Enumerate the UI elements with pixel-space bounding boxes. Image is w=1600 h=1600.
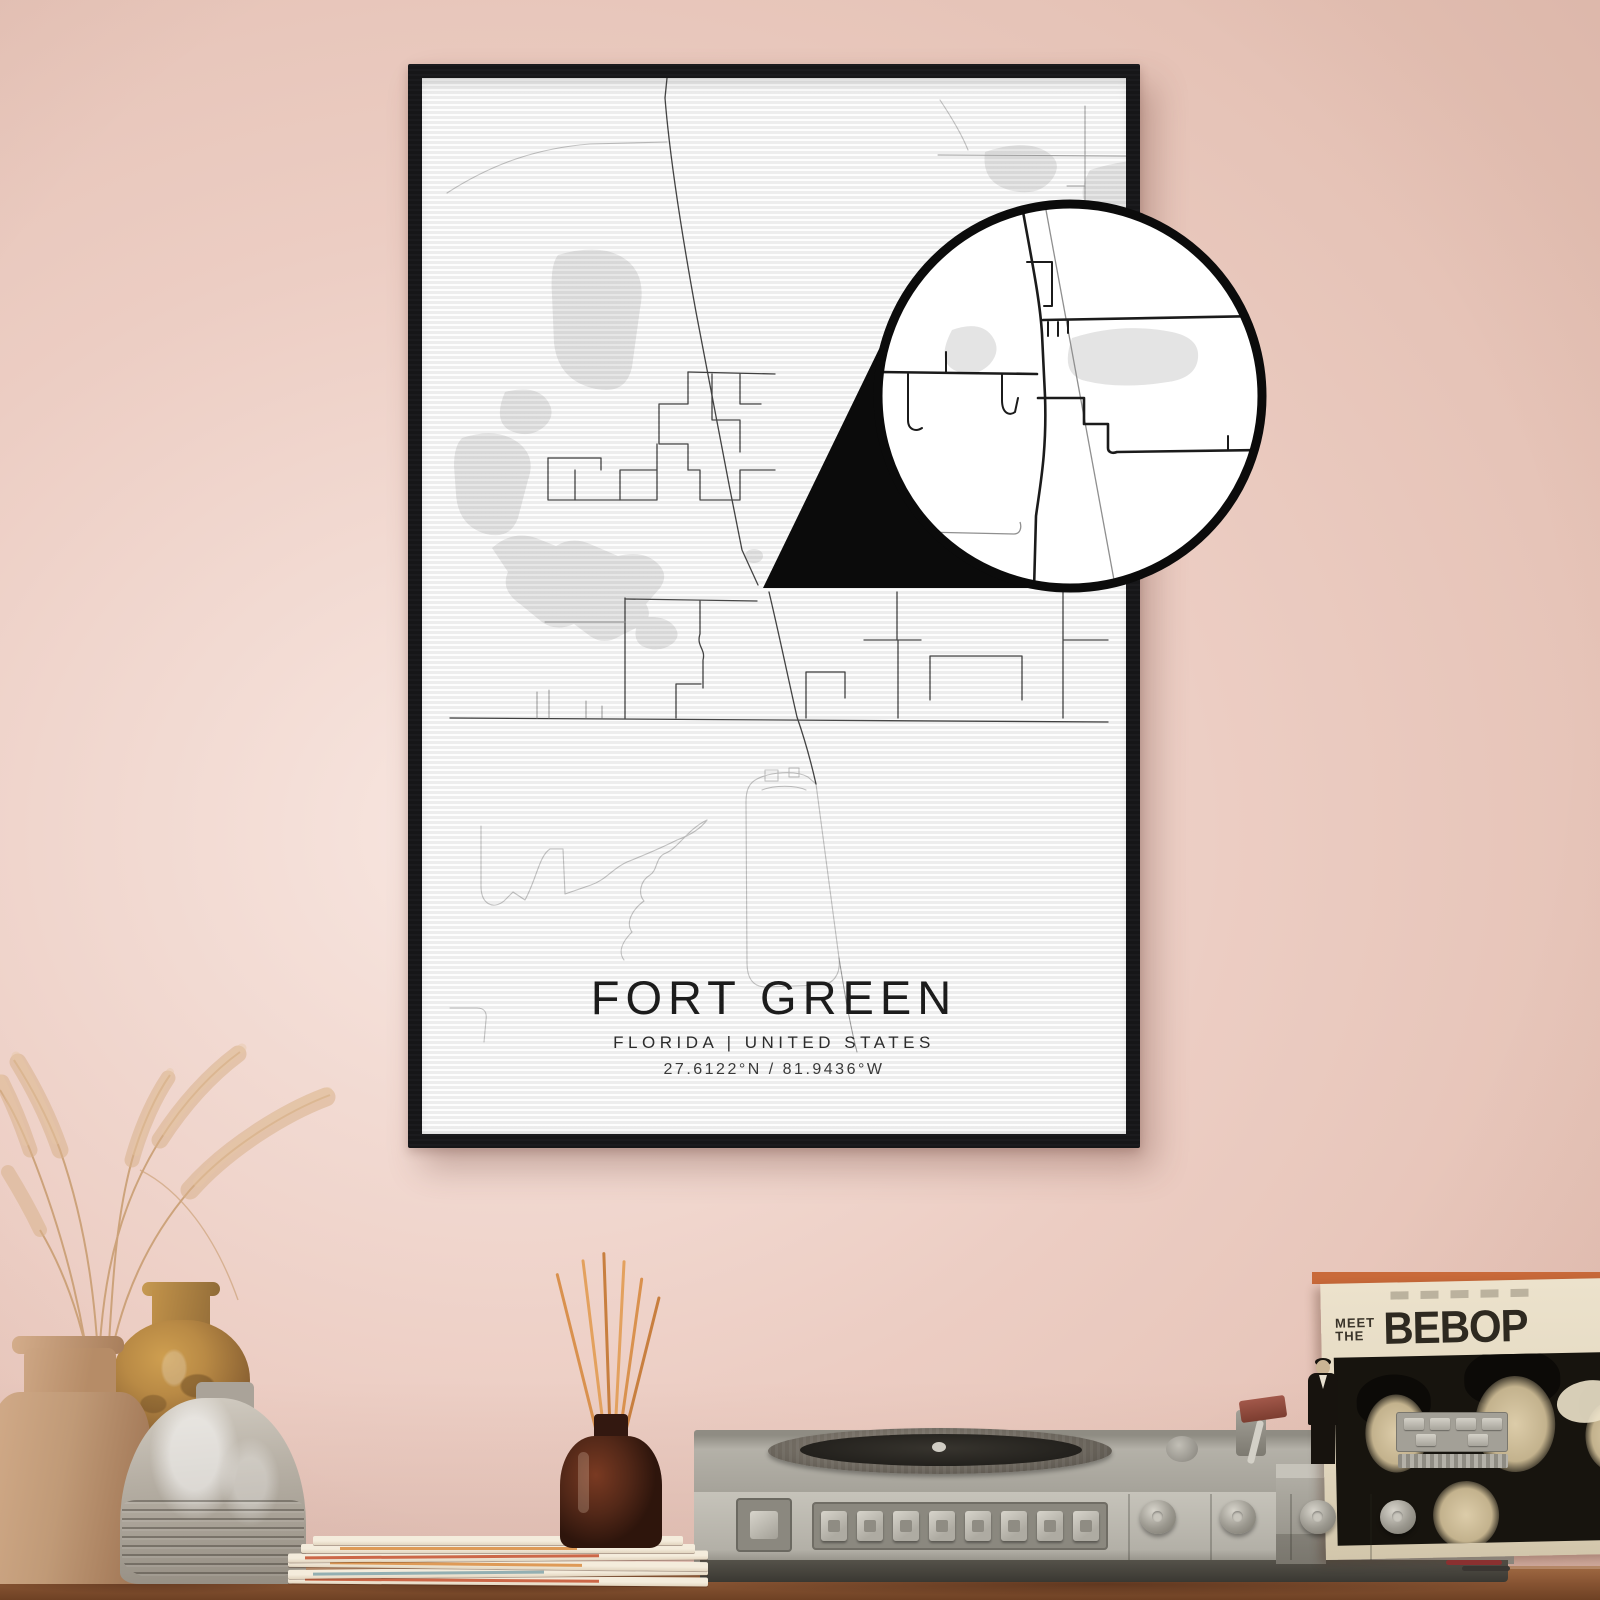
poster-coordinates: 27.6122°N / 81.9436°W	[422, 1062, 1126, 1078]
sleeve-title: MEET THE BEBOP	[1335, 1302, 1600, 1352]
preset-button	[1037, 1511, 1063, 1541]
pencil	[1446, 1560, 1502, 1565]
figurine	[1302, 1360, 1346, 1464]
preset-button	[1073, 1511, 1099, 1541]
room-scene: FORT GREEN FLORIDA | UNITED STATES 27.61…	[0, 0, 1600, 1600]
preset-button	[1001, 1511, 1027, 1541]
slider-cap	[1468, 1434, 1488, 1446]
sleeve-word-the: THE	[1335, 1329, 1375, 1343]
preset-button	[857, 1511, 883, 1541]
map-poster: FORT GREEN FLORIDA | UNITED STATES 27.61…	[422, 78, 1126, 1134]
power-button	[736, 1498, 792, 1552]
sleeve-fineprint	[1390, 1288, 1540, 1299]
slider-cap	[1482, 1418, 1502, 1430]
slider-cap	[1416, 1434, 1436, 1446]
pencil	[1462, 1566, 1510, 1571]
sleeve-logo-badge	[1554, 1376, 1600, 1428]
diffuser-bottle	[560, 1436, 662, 1548]
panel-groove	[1128, 1494, 1130, 1560]
cue-knob	[1166, 1436, 1198, 1462]
spindle	[932, 1442, 946, 1452]
preset-button	[929, 1511, 955, 1541]
slider-cap	[1456, 1418, 1476, 1430]
sleeve-title-small: MEET THE	[1335, 1316, 1376, 1343]
preset-button	[893, 1511, 919, 1541]
sleeve-band-name: BEBOP	[1383, 1303, 1528, 1351]
map-water	[454, 145, 1126, 650]
slider-cap	[1404, 1418, 1424, 1430]
figurine-legs	[1311, 1423, 1335, 1464]
panel-groove	[1290, 1494, 1292, 1560]
poster-title: FORT GREEN	[422, 974, 1126, 1021]
slider-panel	[1396, 1412, 1508, 1452]
volume-knob	[1140, 1500, 1176, 1534]
tuning-knob	[1380, 1500, 1416, 1534]
treble-knob	[1300, 1500, 1336, 1534]
cover-face	[1432, 1480, 1499, 1545]
poster-text-block: FORT GREEN FLORIDA | UNITED STATES 27.61…	[422, 974, 1126, 1078]
preset-button-row	[812, 1502, 1108, 1550]
preset-button	[965, 1511, 991, 1541]
record-player-base	[700, 1560, 1508, 1582]
poster-subtitle: FLORIDA | UNITED STATES	[422, 1034, 1126, 1051]
panel-groove	[1210, 1494, 1212, 1560]
preset-button	[821, 1511, 847, 1541]
poster-frame: FORT GREEN FLORIDA | UNITED STATES 27.61…	[408, 64, 1140, 1148]
bass-knob	[1220, 1500, 1256, 1534]
panel-groove	[1370, 1494, 1372, 1560]
vent-ribs	[1398, 1454, 1508, 1468]
gray-vase-ribs	[122, 1500, 304, 1580]
slider-cap	[1430, 1418, 1450, 1430]
